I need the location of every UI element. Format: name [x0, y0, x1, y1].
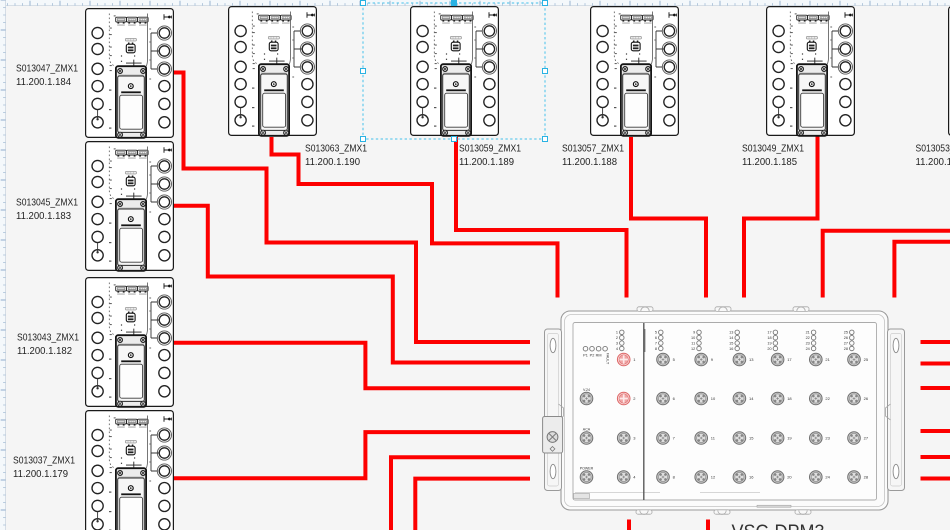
svg-text:S013043_ZMX1: S013043_ZMX1: [17, 332, 79, 344]
svg-text:V.24: V.24: [583, 388, 590, 392]
svg-text:11.200.1.179: 11.200.1.179: [13, 468, 68, 480]
svg-text:15: 15: [749, 436, 754, 441]
svg-text:27: 27: [844, 342, 848, 346]
svg-text:POWER: POWER: [580, 467, 594, 471]
svg-text:16: 16: [749, 475, 754, 480]
svg-text:1: 1: [616, 331, 618, 335]
svg-text:18: 18: [787, 396, 792, 401]
svg-text:19: 19: [767, 342, 771, 346]
svg-text:18: 18: [767, 336, 771, 340]
svg-text:28: 28: [844, 347, 848, 351]
svg-text:S013053_ZMX1: S013053_ZMX1: [916, 142, 950, 154]
svg-text:11.200.1.183: 11.200.1.183: [16, 210, 71, 222]
svg-text:6: 6: [655, 336, 657, 340]
svg-text:11.200.1.184: 11.200.1.184: [16, 76, 71, 88]
svg-text:25: 25: [864, 357, 869, 362]
svg-text:S013037_ZMX1: S013037_ZMX1: [13, 455, 75, 467]
svg-text:28: 28: [864, 475, 869, 480]
svg-text:ACA: ACA: [583, 428, 591, 432]
svg-text:P2: P2: [590, 353, 595, 357]
svg-text:25: 25: [844, 331, 848, 335]
svg-text:26: 26: [864, 396, 869, 401]
svg-text:22: 22: [825, 396, 830, 401]
svg-text:8: 8: [655, 347, 657, 351]
svg-text:11.200.1.190: 11.200.1.190: [305, 156, 360, 168]
svg-text:P1: P1: [583, 353, 588, 357]
svg-text:S013045_ZMX1: S013045_ZMX1: [16, 196, 78, 208]
svg-text:14: 14: [729, 336, 733, 340]
svg-text:21: 21: [825, 357, 830, 362]
svg-text:21: 21: [806, 331, 810, 335]
svg-text:10: 10: [691, 336, 695, 340]
svg-text:11.200.1.188: 11.200.1.188: [562, 156, 617, 168]
svg-text:9: 9: [693, 331, 695, 335]
svg-text:17: 17: [787, 357, 792, 362]
svg-text:26: 26: [844, 336, 848, 340]
svg-text:15: 15: [729, 342, 733, 346]
svg-text:2: 2: [616, 336, 618, 340]
svg-text:23: 23: [825, 436, 830, 441]
svg-text:13: 13: [749, 357, 754, 362]
svg-text:24: 24: [825, 475, 830, 480]
svg-text:14: 14: [749, 396, 754, 401]
svg-text:S013063_ZMX1: S013063_ZMX1: [305, 142, 367, 154]
svg-text:3: 3: [616, 342, 618, 346]
svg-text:23: 23: [806, 342, 810, 346]
svg-text:11.200.1.189: 11.200.1.189: [459, 156, 514, 168]
svg-text:10: 10: [711, 396, 716, 401]
svg-text:VSC-DPM3: VSC-DPM3: [732, 521, 825, 530]
svg-text:11: 11: [691, 342, 695, 346]
svg-text:11.200.1.185: 11.200.1.185: [742, 156, 797, 168]
svg-text:20: 20: [787, 475, 792, 480]
svg-text:4: 4: [616, 347, 618, 351]
svg-text:13: 13: [729, 331, 733, 335]
svg-text:20: 20: [767, 347, 771, 351]
svg-text:22: 22: [806, 336, 810, 340]
svg-text:S013049_ZMX1: S013049_ZMX1: [742, 142, 804, 154]
svg-text:19: 19: [787, 436, 792, 441]
svg-text:RM: RM: [596, 353, 602, 357]
svg-text:24: 24: [806, 347, 810, 351]
svg-text:17: 17: [767, 331, 771, 335]
svg-text:16: 16: [729, 347, 733, 351]
svg-text:S013047_ZMX1: S013047_ZMX1: [16, 62, 78, 74]
svg-text:7: 7: [655, 342, 657, 346]
svg-text:S013059_ZMX1: S013059_ZMX1: [459, 142, 521, 154]
svg-text:11.200.1.186: 11.200.1.186: [916, 156, 950, 168]
svg-text:11.200.1.182: 11.200.1.182: [17, 345, 72, 357]
svg-text:27: 27: [864, 436, 869, 441]
svg-text:S013057_ZMX1: S013057_ZMX1: [562, 142, 624, 154]
svg-text:12: 12: [711, 475, 716, 480]
svg-text:5: 5: [655, 331, 657, 335]
svg-text:FAULT: FAULT: [605, 353, 609, 365]
svg-text:12: 12: [691, 347, 695, 351]
